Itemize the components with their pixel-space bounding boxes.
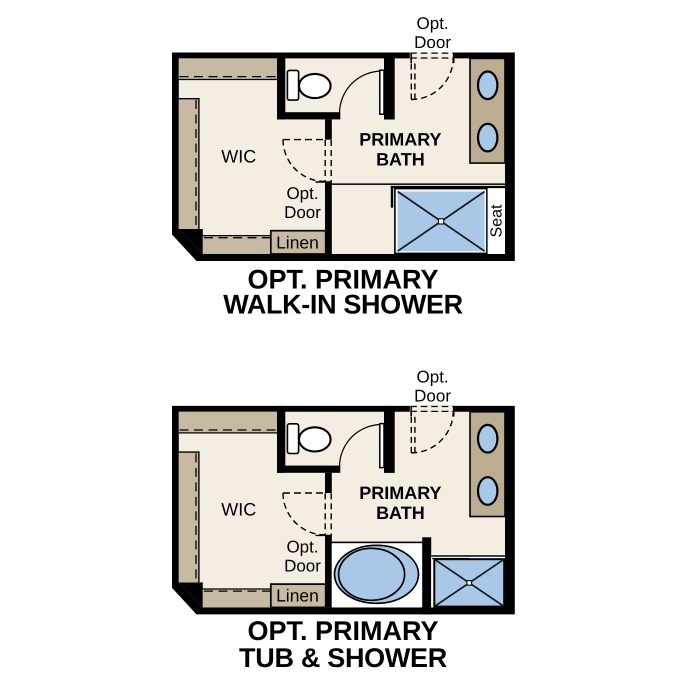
svg-text:WIC: WIC	[221, 500, 256, 520]
svg-text:BATH: BATH	[376, 503, 425, 523]
svg-text:WIC: WIC	[221, 146, 256, 166]
svg-text:Seat: Seat	[488, 204, 505, 237]
svg-text:OPT. PRIMARY: OPT. PRIMARY	[247, 616, 438, 646]
svg-text:WALK-IN SHOWER: WALK-IN SHOWER	[223, 289, 463, 319]
svg-text:PRIMARY: PRIMARY	[359, 483, 441, 503]
svg-text:BATH: BATH	[376, 150, 425, 170]
svg-text:Door: Door	[414, 386, 451, 405]
svg-text:Door: Door	[284, 203, 321, 222]
svg-text:Opt.: Opt.	[286, 184, 318, 203]
svg-text:Door: Door	[284, 556, 321, 575]
svg-text:Linen: Linen	[276, 232, 319, 252]
svg-text:Opt.: Opt.	[417, 368, 449, 387]
svg-text:Opt.: Opt.	[417, 14, 449, 33]
svg-text:Opt.: Opt.	[286, 538, 318, 557]
svg-text:Linen: Linen	[276, 586, 319, 606]
svg-text:TUB & SHOWER: TUB & SHOWER	[239, 643, 447, 673]
svg-text:PRIMARY: PRIMARY	[359, 130, 441, 150]
svg-text:Door: Door	[414, 33, 451, 52]
